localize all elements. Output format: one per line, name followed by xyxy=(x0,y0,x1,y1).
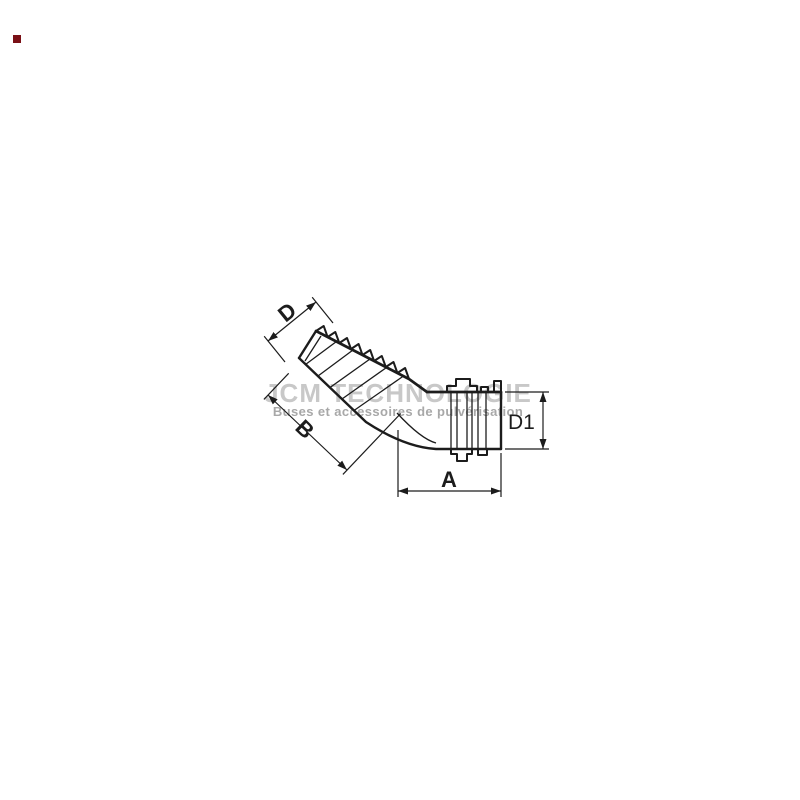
barb-ring-line xyxy=(318,350,353,376)
tail-mouth-edge xyxy=(299,331,316,358)
watermark: JCM TECHNOLOGIE Buses et accessoires de … xyxy=(264,378,532,419)
catalog-image-page: JCM TECHNOLOGIE Buses et accessoires de … xyxy=(0,0,800,800)
tail-bore-edge xyxy=(305,336,321,361)
dimension-label-d: D xyxy=(273,297,301,326)
extension-line xyxy=(312,297,333,323)
dimension-label-d1: D1 xyxy=(508,411,535,434)
brand-logo-mark xyxy=(13,35,21,43)
extension-line xyxy=(264,336,285,362)
straight-end-bottom-notches xyxy=(451,449,487,461)
product-drawing: JCM TECHNOLOGIE Buses et accessoires de … xyxy=(0,0,800,800)
extension-line xyxy=(343,414,401,475)
dimension-label-a: A xyxy=(441,467,457,492)
